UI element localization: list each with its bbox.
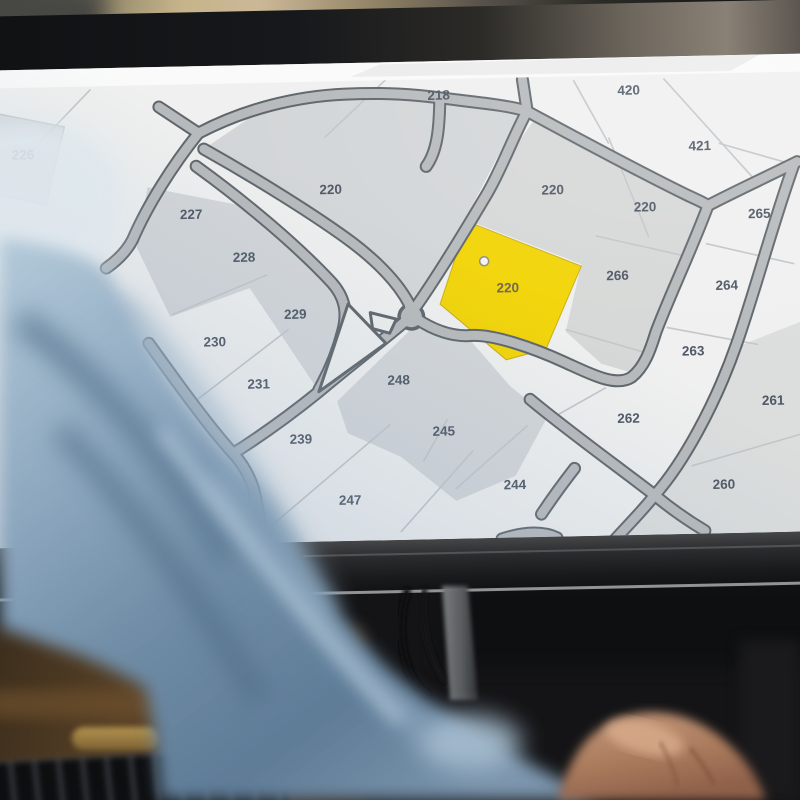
selected-parcel-label: 220: [496, 280, 519, 295]
parcel-label: 239: [289, 431, 312, 446]
parcel-label: 264: [715, 277, 738, 292]
parcel-label: 266: [606, 268, 629, 283]
parcel-label: 231: [247, 376, 270, 391]
monitor-screen[interactable]: 218 420 421 226 227 220 220 220 265 228 …: [0, 53, 800, 549]
parcel-label: 220: [634, 199, 657, 214]
parcel-label: 421: [688, 138, 711, 153]
photo-scene: 218 420 421 226 227 220 220 220 265 228 …: [0, 0, 800, 800]
parcel-label: 228: [233, 250, 256, 265]
parcel-label: 226: [11, 147, 34, 162]
parcel-label: 263: [682, 343, 705, 358]
parcel-label: 220: [541, 182, 564, 197]
parcel-label: 261: [762, 393, 785, 408]
cadastral-map[interactable]: 218 420 421 226 227 220 220 220 265 228 …: [0, 53, 800, 549]
wood-shelf-edge: [0, 690, 330, 718]
parcel-label: 230: [203, 334, 226, 349]
drawer-handle: [72, 727, 160, 750]
parcel-label: 265: [748, 206, 771, 221]
parcel-label: 262: [617, 411, 640, 426]
cursor-dot-icon: [480, 257, 489, 266]
parcel-label: 244: [503, 477, 526, 492]
parcel-label: 420: [617, 82, 640, 97]
parcel-label: 245: [432, 423, 455, 438]
parcel-label: 218: [427, 87, 450, 102]
monitor: 218 420 421 226 227 220 220 220 265 228 …: [0, 0, 800, 603]
parcel-label: 260: [712, 477, 735, 492]
parcel-label: 247: [339, 492, 362, 507]
parcel-label: 220: [319, 182, 342, 197]
desk-dark-area: [740, 640, 800, 800]
parcel-label: 248: [387, 372, 410, 387]
parcel-label: 227: [180, 207, 203, 222]
bezel-groove: [303, 544, 800, 557]
parcel-label: 229: [284, 307, 307, 322]
